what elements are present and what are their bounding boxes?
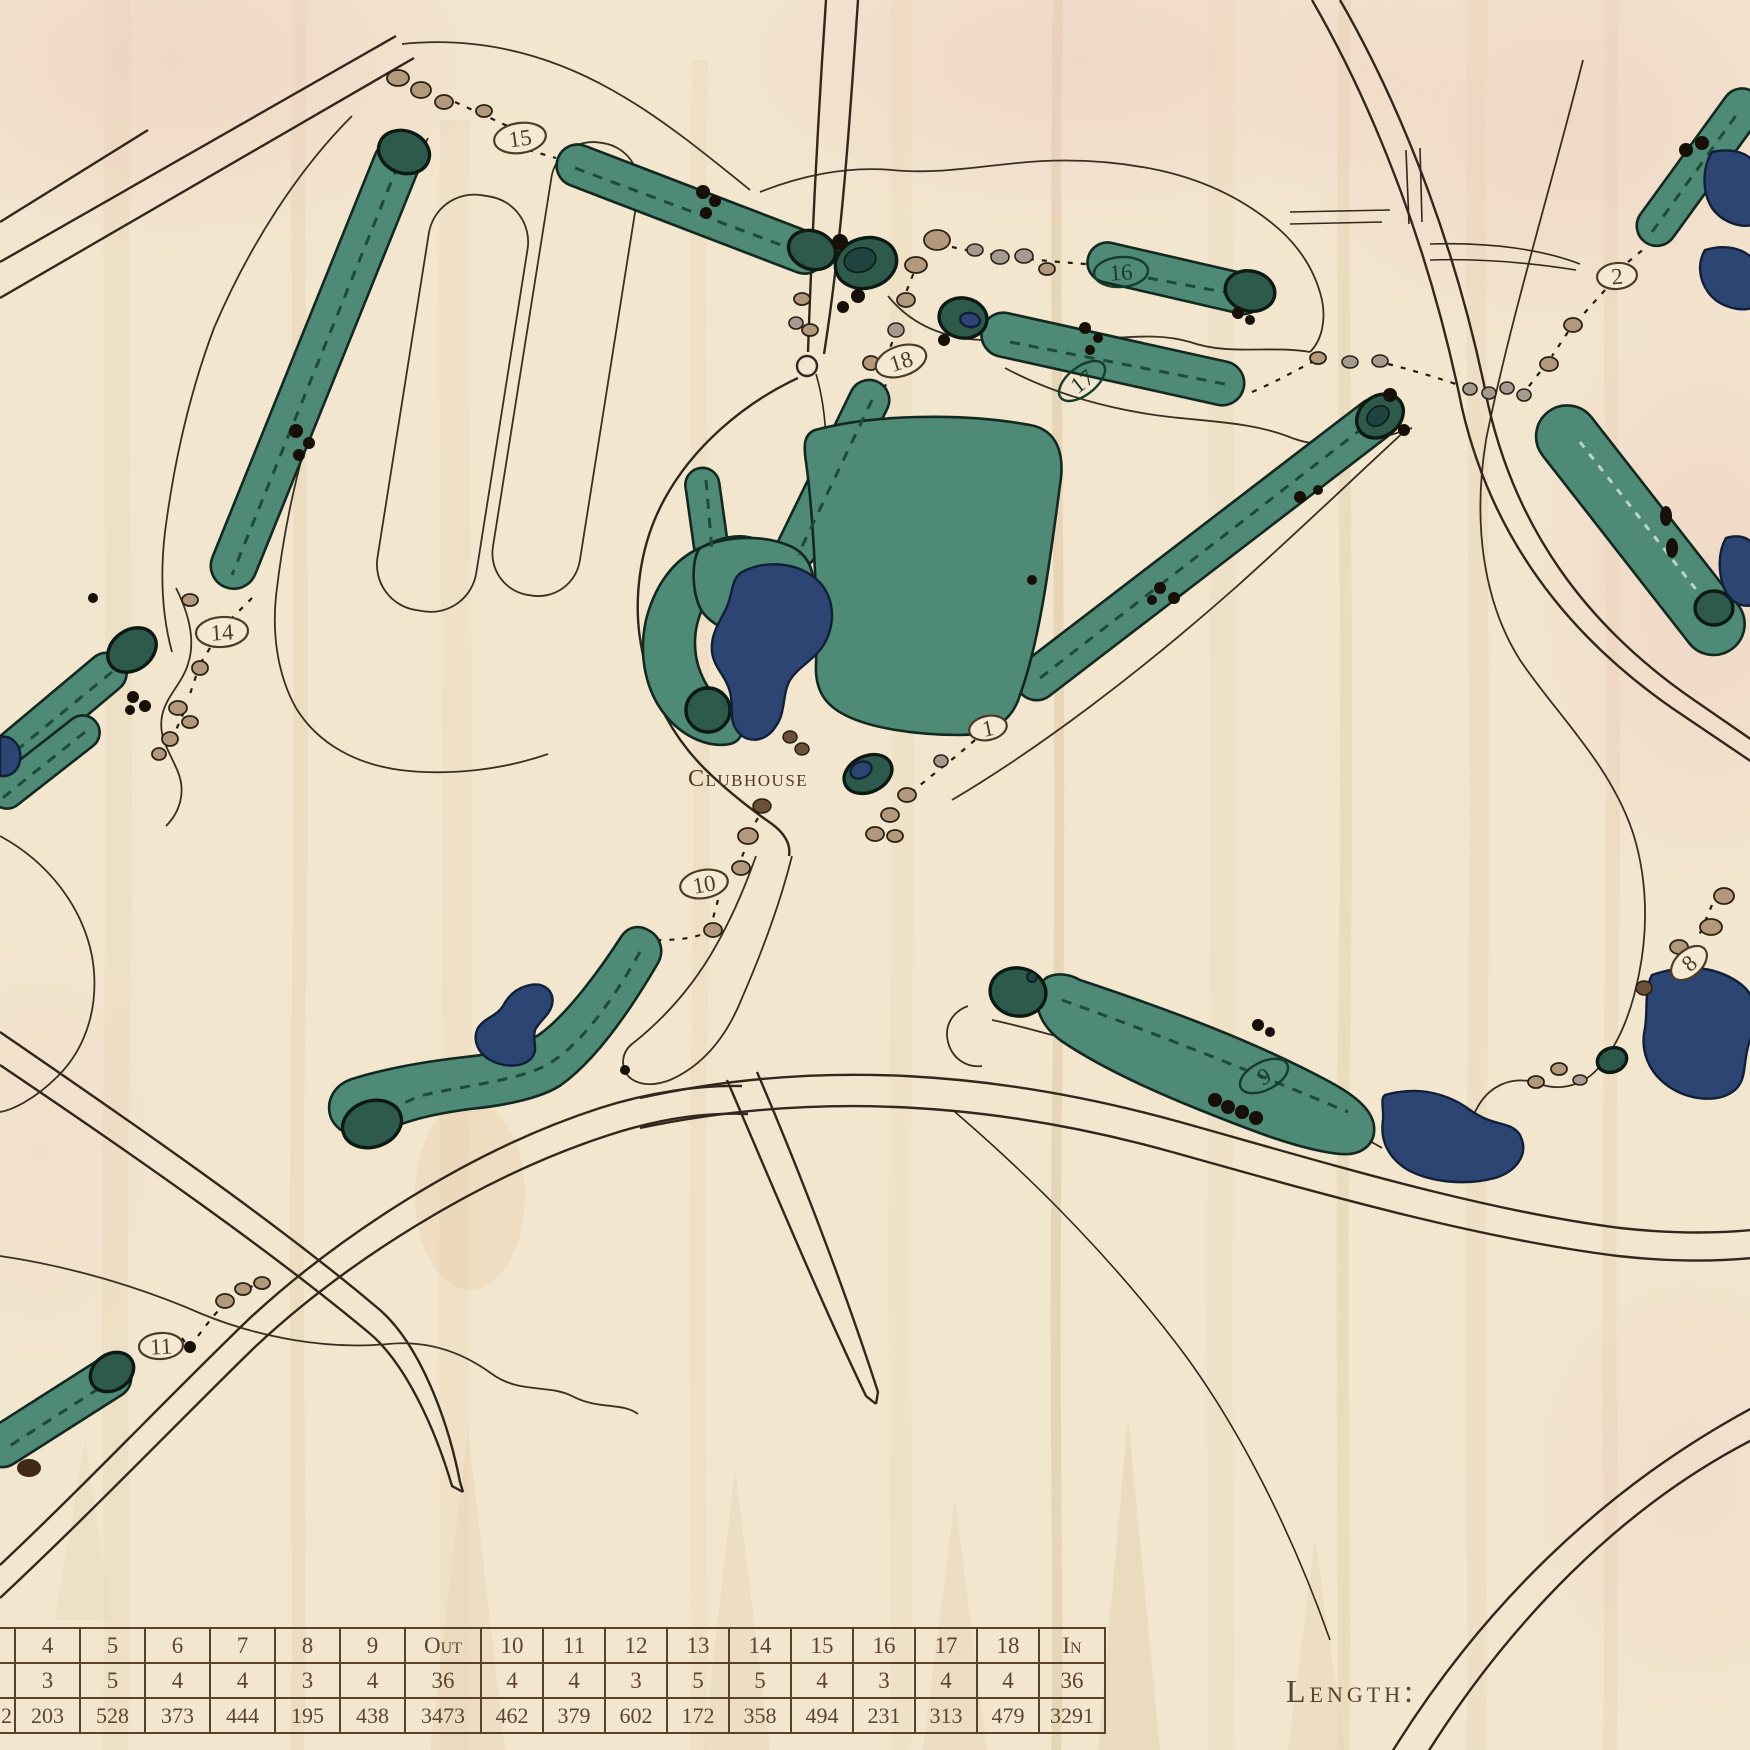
scorecard-cell: 8	[275, 1628, 340, 1663]
hole-number: 11	[149, 1333, 172, 1359]
scorecard-cell: 7	[210, 1628, 275, 1663]
scorecard-cell: 231	[853, 1698, 915, 1733]
scorecard-cell: 5	[729, 1663, 791, 1698]
scorecard-cell	[0, 1663, 15, 1698]
scorecard-hole-row: 456789Out101112131415161718In	[0, 1628, 1105, 1663]
course-map-canvas: 15 16 17 18 14 2 1 10	[0, 0, 1750, 1750]
scorecard-cell: 3	[15, 1663, 80, 1698]
scorecard-cell: 203	[15, 1698, 80, 1733]
golf-course-wood-map: 15 16 17 18 14 2 1 10	[0, 0, 1750, 1750]
scorecard-length-row: 2203528373444195438347346237960217235849…	[0, 1698, 1105, 1733]
scorecard-cell: 462	[481, 1698, 543, 1733]
scorecard-cell: 444	[210, 1698, 275, 1733]
hole-number: 10	[691, 870, 718, 899]
scorecard-cell: 373	[145, 1698, 210, 1733]
scorecard-cell: 16	[853, 1628, 915, 1663]
scorecard-cell: 3	[605, 1663, 667, 1698]
scorecard-cell: 4	[210, 1663, 275, 1698]
clubhouse-label: Clubhouse	[688, 766, 808, 792]
scorecard-cell: 4	[340, 1663, 405, 1698]
roundabout	[797, 356, 817, 376]
scorecard-table: 456789Out101112131415161718In 3544343644…	[0, 1627, 1106, 1734]
scorecard-cell: 3291	[1039, 1698, 1105, 1733]
scorecard-cell: 13	[667, 1628, 729, 1663]
scorecard-cell: 379	[543, 1698, 605, 1733]
scorecard-cell: 6	[145, 1628, 210, 1663]
hole8-pond	[1644, 968, 1750, 1099]
scorecard-cell: In	[1039, 1628, 1105, 1663]
scorecard-cell: 9	[340, 1628, 405, 1663]
scorecard-cell: 5	[667, 1663, 729, 1698]
scorecard-cell: 5	[80, 1628, 145, 1663]
scorecard-cell: 494	[791, 1698, 853, 1733]
scorecard-cell: 438	[340, 1698, 405, 1733]
scorecard-cell: 4	[791, 1663, 853, 1698]
scorecard-cell: 36	[405, 1663, 481, 1698]
scorecard-cell: 358	[729, 1698, 791, 1733]
scorecard-cell: 4	[481, 1663, 543, 1698]
scorecard-cell: 2	[0, 1698, 15, 1733]
scorecard-cell: 15	[791, 1628, 853, 1663]
scorecard-cell: 14	[729, 1628, 791, 1663]
scorecard-cell: 602	[605, 1698, 667, 1733]
scorecard-cell: 5	[80, 1663, 145, 1698]
length-label: Length:	[1286, 1673, 1417, 1709]
scorecard-par-row: 3544343644355434436	[0, 1663, 1105, 1698]
hole-number: 2	[1610, 264, 1624, 290]
scorecard-cell: 4	[977, 1663, 1039, 1698]
scorecard-cell: 17	[915, 1628, 977, 1663]
scorecard-cell: 172	[667, 1698, 729, 1733]
scorecard-cell	[0, 1628, 15, 1663]
scorecard-cell: Out	[405, 1628, 481, 1663]
hole-number: 15	[507, 125, 533, 153]
scorecard-cell: 11	[543, 1628, 605, 1663]
scorecard-cell: 313	[915, 1698, 977, 1733]
scorecard-cell: 195	[275, 1698, 340, 1733]
scorecard-cell: 12	[605, 1628, 667, 1663]
scorecard-cell: 479	[977, 1698, 1039, 1733]
scorecard-cell: 4	[145, 1663, 210, 1698]
scorecard-cell: 3473	[405, 1698, 481, 1733]
scorecard-cell: 4	[15, 1628, 80, 1663]
scorecard-cell: 4	[915, 1663, 977, 1698]
hole-number: 14	[210, 619, 235, 646]
scorecard-cell: 4	[543, 1663, 605, 1698]
scorecard-cell: 36	[1039, 1663, 1105, 1698]
hole-number: 16	[1109, 259, 1134, 286]
fairway-central-wide	[805, 417, 1062, 735]
scorecard-cell: 10	[481, 1628, 543, 1663]
scorecard-cell: 3	[275, 1663, 340, 1698]
scorecard-cell: 528	[80, 1698, 145, 1733]
scorecard-cell: 3	[853, 1663, 915, 1698]
scorecard-cell: 18	[977, 1628, 1039, 1663]
